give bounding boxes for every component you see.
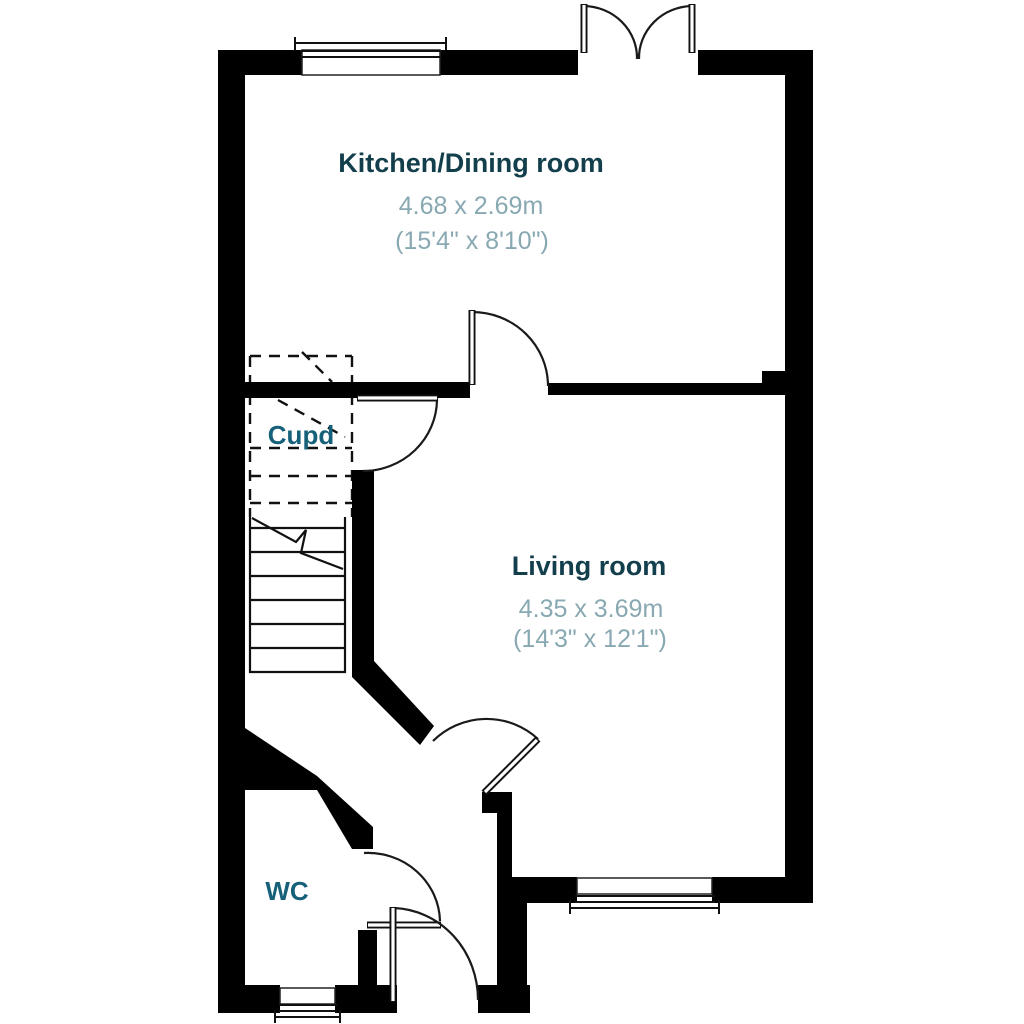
cupboard-door (357, 398, 438, 471)
kitchen-window (295, 37, 446, 75)
wall-hall-upper (497, 813, 512, 877)
wall-left (218, 50, 245, 1013)
wall-living-bottom-right (712, 877, 813, 903)
wc-label: WC (265, 876, 309, 906)
wall-hall-lower (497, 877, 527, 1013)
kitchen-room-metric: 4.68 x 2.69m (399, 192, 544, 220)
wall-stairs-side (352, 470, 374, 677)
stairs (250, 352, 352, 672)
kitchen-room-title: Kitchen/Dining room (338, 148, 604, 178)
living-room-imperial: (14'3" x 12'1") (513, 625, 667, 653)
wall-diagonal-lower (245, 728, 373, 849)
cupboard-label: Cupd (268, 420, 334, 450)
living-window (570, 878, 719, 914)
living-door (433, 719, 538, 793)
kitchen-door (472, 310, 548, 386)
wall-wc-side (358, 930, 377, 987)
wall-bottom-wc-right (335, 985, 397, 1013)
wall-bottom-wc-left (218, 985, 280, 1013)
wall-divider-notch (762, 371, 786, 385)
wall-diagonal-upper (352, 661, 434, 745)
kitchen-room-imperial: (15'4" x 8'10") (395, 227, 549, 255)
wall-divider-thin (548, 383, 785, 395)
living-room-metric: 4.35 x 3.69m (519, 595, 664, 623)
stair-break-line (252, 518, 343, 569)
wc-door (364, 853, 441, 925)
wall-top-middle (440, 50, 578, 75)
floorplan-drawing: Kitchen/Dining room 4.68 x 2.69m (15'4" … (0, 0, 1024, 1024)
french-doors (584, 4, 692, 59)
living-room-title: Living room (512, 551, 667, 581)
wc-window (275, 988, 340, 1023)
front-door (393, 907, 478, 1002)
wall-right (785, 50, 813, 903)
floorplan-page: Kitchen/Dining room 4.68 x 2.69m (15'4" … (0, 0, 1024, 1024)
